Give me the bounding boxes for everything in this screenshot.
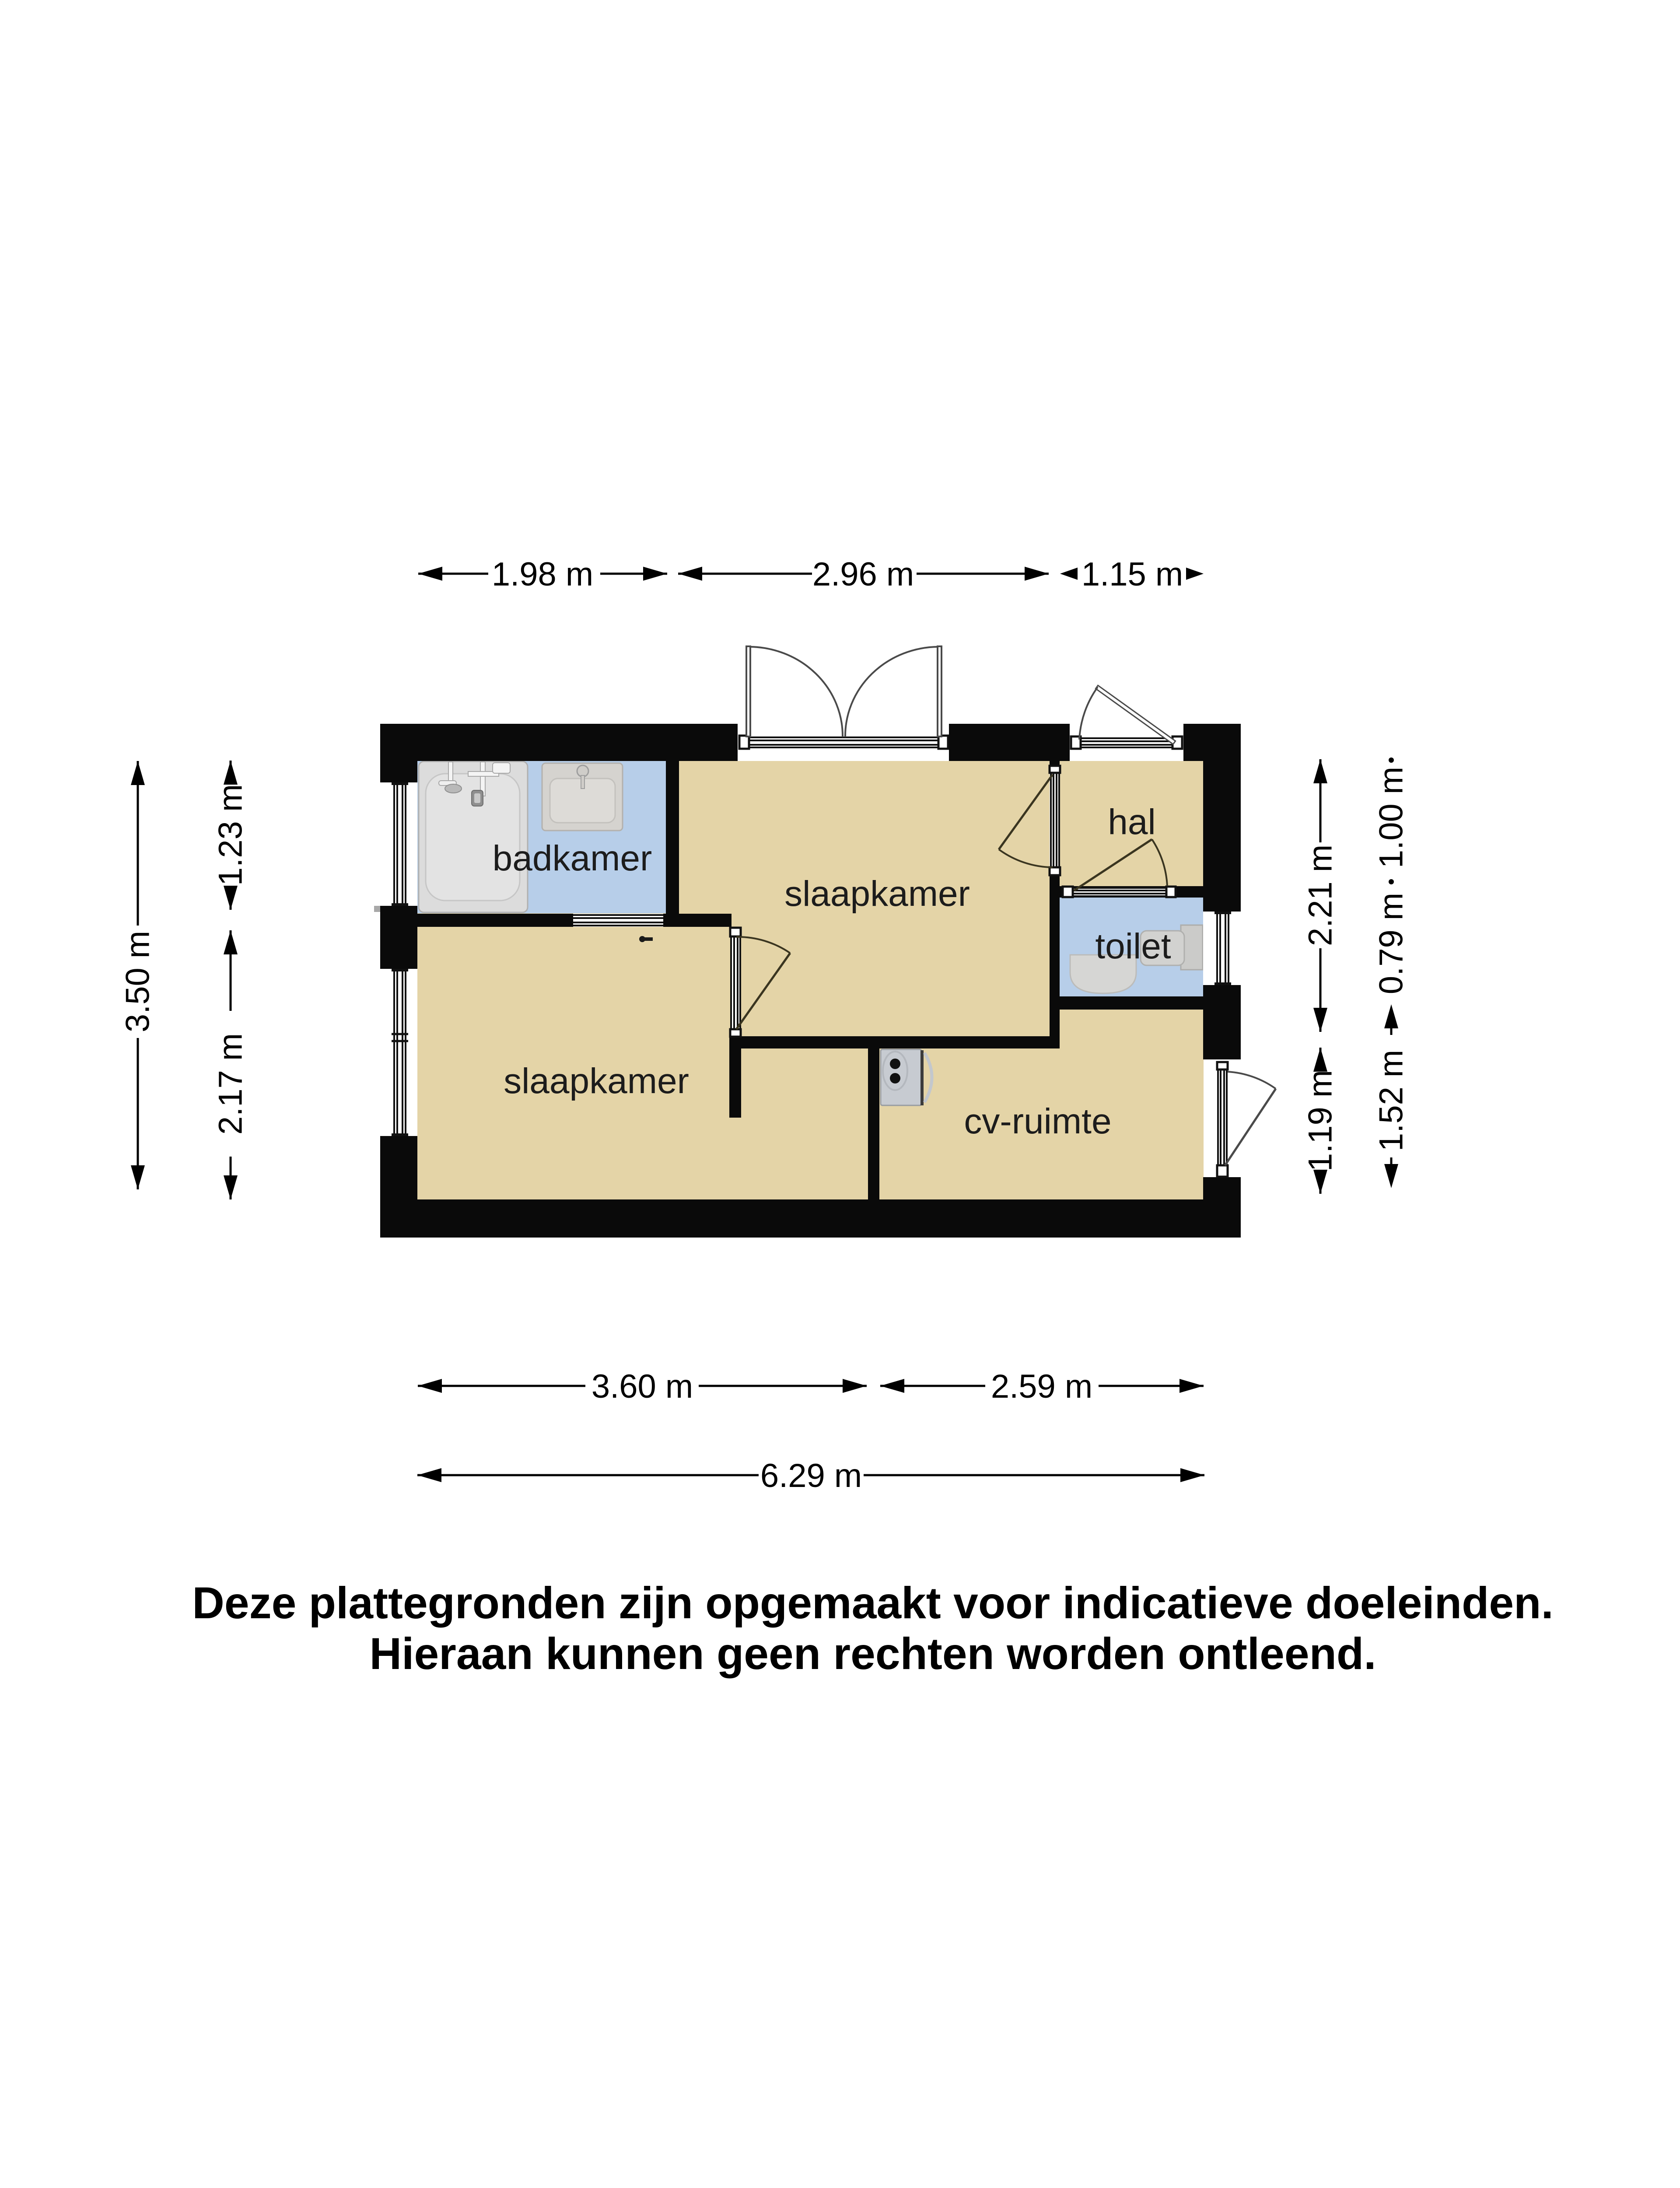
svg-text:badkamer: badkamer — [493, 838, 652, 878]
svg-text:1.23 m: 1.23 m — [212, 784, 249, 886]
svg-text:2.21 m: 2.21 m — [1302, 845, 1339, 946]
svg-text:2.59 m: 2.59 m — [991, 1368, 1092, 1405]
svg-text:1.52 m: 1.52 m — [1373, 1050, 1410, 1151]
svg-text:1.00 m: 1.00 m — [1373, 767, 1410, 868]
svg-text:2.17 m: 2.17 m — [212, 1033, 249, 1135]
svg-text:1.98 m: 1.98 m — [492, 556, 593, 593]
svg-text:2.96 m: 2.96 m — [812, 556, 914, 593]
svg-text:1.15 m: 1.15 m — [1081, 556, 1183, 593]
svg-text:hal: hal — [1108, 802, 1155, 842]
svg-text:Deze plattegronden zijn opgema: Deze plattegronden zijn opgemaakt voor i… — [192, 1578, 1554, 1628]
svg-text:toilet: toilet — [1095, 926, 1171, 966]
svg-text:1.19 m: 1.19 m — [1302, 1070, 1339, 1171]
svg-text:Hieraan kunnen geen rechten wo: Hieraan kunnen geen rechten worden ontle… — [369, 1629, 1376, 1679]
svg-text:slaapkamer: slaapkamer — [784, 874, 970, 914]
svg-text:3.50 m: 3.50 m — [119, 931, 157, 1032]
svg-text:6.29 m: 6.29 m — [760, 1457, 862, 1494]
svg-text:3.60 m: 3.60 m — [591, 1368, 693, 1405]
svg-text:0.79 m: 0.79 m — [1373, 893, 1410, 994]
svg-text:cv-ruimte: cv-ruimte — [964, 1101, 1111, 1141]
svg-text:slaapkamer: slaapkamer — [504, 1061, 689, 1101]
